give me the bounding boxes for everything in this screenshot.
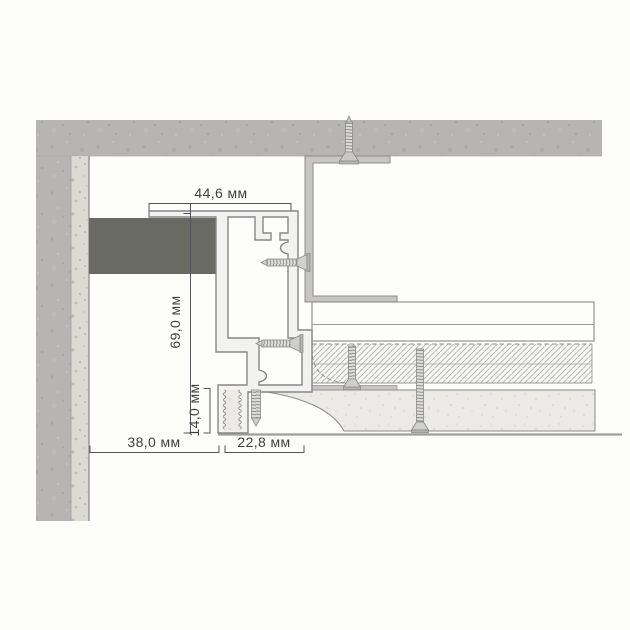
screw-shank [346, 122, 353, 153]
dim-line [149, 204, 291, 211]
profile-screw-upper [261, 254, 310, 272]
dim-wall-offset-label: 38,0 мм [127, 434, 180, 450]
screw-shank [267, 259, 297, 266]
dim-line [204, 389, 211, 434]
profile-pocket-texture [224, 390, 240, 431]
screw-tip [252, 418, 261, 426]
dim-top-width-label: 44,6 мм [194, 185, 247, 201]
profile-screw-lower [256, 335, 303, 353]
screw-shank [349, 346, 356, 379]
drywall-layer-1 [312, 302, 594, 341]
screw-head-flange [307, 254, 310, 272]
dim-total-height-label: 69,0 мм [167, 295, 183, 348]
pocket-screw [252, 390, 261, 426]
screw-shank [417, 349, 424, 422]
ceiling-slab [36, 120, 602, 156]
cross-section-svg: 44,6 мм 69,0 мм 14,0 мм 38,0 мм 22,8 мм [0, 0, 630, 630]
screw-head-flange [300, 335, 303, 353]
screw-shank [252, 390, 261, 418]
drywall-assembly [218, 302, 622, 435]
dim-top-width: 44,6 мм [149, 185, 291, 211]
wall-plaster-layer [71, 156, 89, 521]
screw-head-flange [344, 387, 361, 390]
wall-slab [36, 120, 71, 521]
dim-edge-height-label: 14,0 мм [186, 383, 202, 436]
drawing-canvas: 44,6 мм 69,0 мм 14,0 мм 38,0 мм 22,8 мм [0, 0, 630, 630]
screw-head-flange [340, 161, 359, 164]
screw-head-flange [412, 430, 429, 433]
screw-shank [262, 340, 290, 347]
mounting-bracket [305, 156, 397, 302]
shadow-gap-insert [89, 218, 216, 274]
dim-edge-height: 14,0 мм [186, 383, 210, 436]
dim-base-width: 22,8 мм [225, 434, 304, 453]
dim-base-width-label: 22,8 мм [237, 434, 290, 450]
